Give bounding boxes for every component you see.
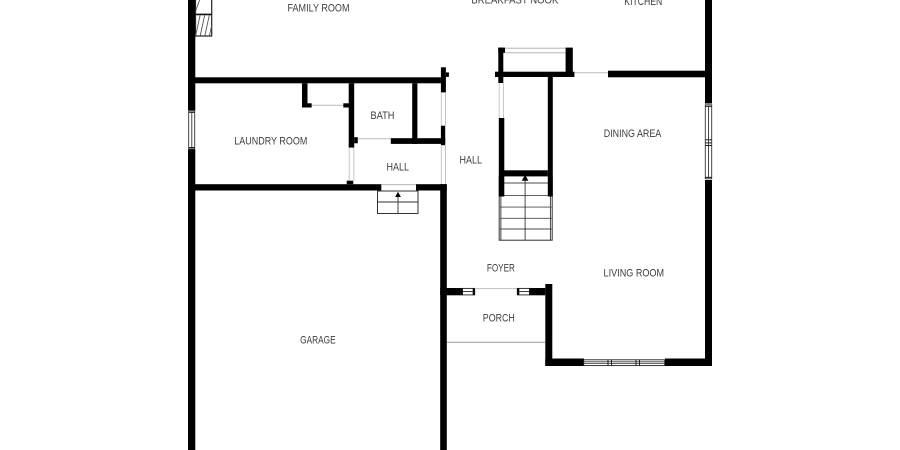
- svg-text:LIVING ROOM: LIVING ROOM: [604, 268, 665, 280]
- svg-text:HALL: HALL: [387, 162, 410, 174]
- svg-text:FAMILY ROOM: FAMILY ROOM: [288, 3, 350, 15]
- svg-text:BATH: BATH: [371, 110, 395, 122]
- svg-text:FOYER: FOYER: [487, 263, 515, 275]
- svg-text:LAUNDRY ROOM: LAUNDRY ROOM: [234, 136, 307, 148]
- svg-text:GARAGE: GARAGE: [300, 334, 336, 346]
- svg-text:HALL: HALL: [460, 155, 483, 167]
- svg-text:PORCH: PORCH: [483, 313, 515, 325]
- svg-text:BREAKFAST NOOK: BREAKFAST NOOK: [471, 0, 559, 7]
- svg-text:DINING AREA: DINING AREA: [604, 128, 662, 140]
- svg-text:KITCHEN: KITCHEN: [624, 0, 662, 8]
